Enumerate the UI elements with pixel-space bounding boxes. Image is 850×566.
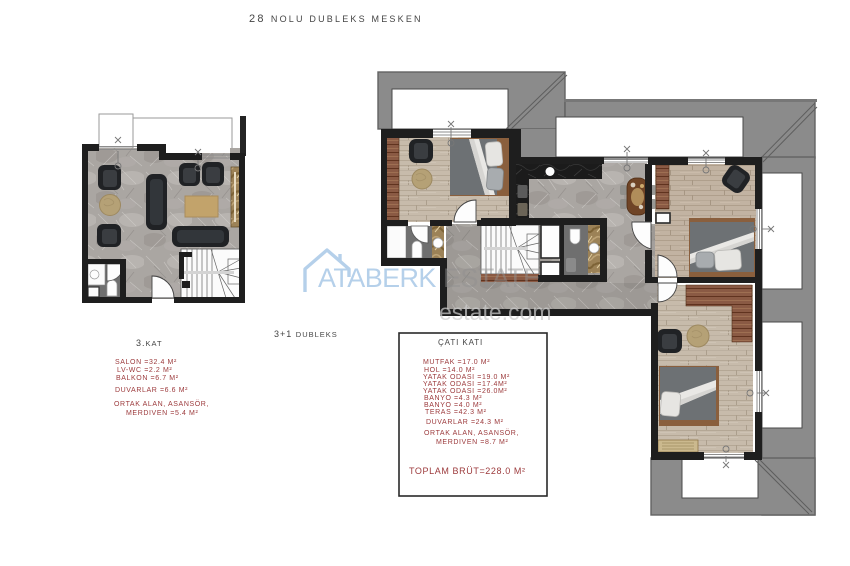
svg-text:HOL =14.0 M²: HOL =14.0 M² [424, 367, 475, 374]
svg-text:DUVARLAR =24.3 M²: DUVARLAR =24.3 M² [426, 419, 504, 426]
svg-text:BALKON =6.7 M²: BALKON =6.7 M² [116, 375, 179, 382]
svg-text:TERAS =42.3 M²: TERAS =42.3 M² [425, 409, 487, 416]
svg-text:YATAK ODASI =19.0 M²: YATAK ODASI =19.0 M² [423, 374, 510, 381]
svg-text:DUVARLAR =6.6 M²: DUVARLAR =6.6 M² [115, 387, 188, 394]
svg-text:3+1 DUBLEKS: 3+1 DUBLEKS [274, 329, 338, 339]
svg-text:LV-WC =2.2 M²: LV-WC =2.2 M² [117, 367, 172, 374]
svg-text:ORTAK ALAN, ASANSÖR,: ORTAK ALAN, ASANSÖR, [114, 400, 209, 408]
svg-text:ATABERK: ATABERK [318, 263, 436, 293]
svg-text:BANYO =4.0 M²: BANYO =4.0 M² [424, 402, 482, 409]
svg-text:SALON =32.4 M²: SALON =32.4 M² [115, 359, 177, 366]
svg-text:YATAK ODASI =26.0M²: YATAK ODASI =26.0M² [423, 388, 507, 395]
svg-text:estate.com: estate.com [439, 299, 552, 325]
svg-text:MERDIVEN =8.7 M²: MERDIVEN =8.7 M² [436, 439, 508, 446]
svg-text:ÇATI KATI: ÇATI KATI [438, 338, 483, 347]
svg-text:YATAK ODASI =17.4M²: YATAK ODASI =17.4M² [423, 381, 507, 388]
svg-text:BANYO =4.3 M²: BANYO =4.3 M² [424, 395, 482, 402]
svg-text:3.KAT: 3.KAT [136, 338, 163, 348]
svg-text:MUTFAK =17.0 M²: MUTFAK =17.0 M² [423, 359, 490, 366]
svg-text:ESTATE: ESTATE [443, 263, 540, 293]
svg-text:ORTAK ALAN, ASANSÖR,: ORTAK ALAN, ASANSÖR, [424, 429, 519, 437]
svg-text:MERDIVEN =5.4 M²: MERDIVEN =5.4 M² [126, 410, 198, 417]
svg-text:TOPLAM BRÜT=228.0 M²: TOPLAM BRÜT=228.0 M² [409, 466, 526, 476]
svg-text:28 NOLU DUBLEKS MESKEN: 28 NOLU DUBLEKS MESKEN [249, 13, 423, 25]
